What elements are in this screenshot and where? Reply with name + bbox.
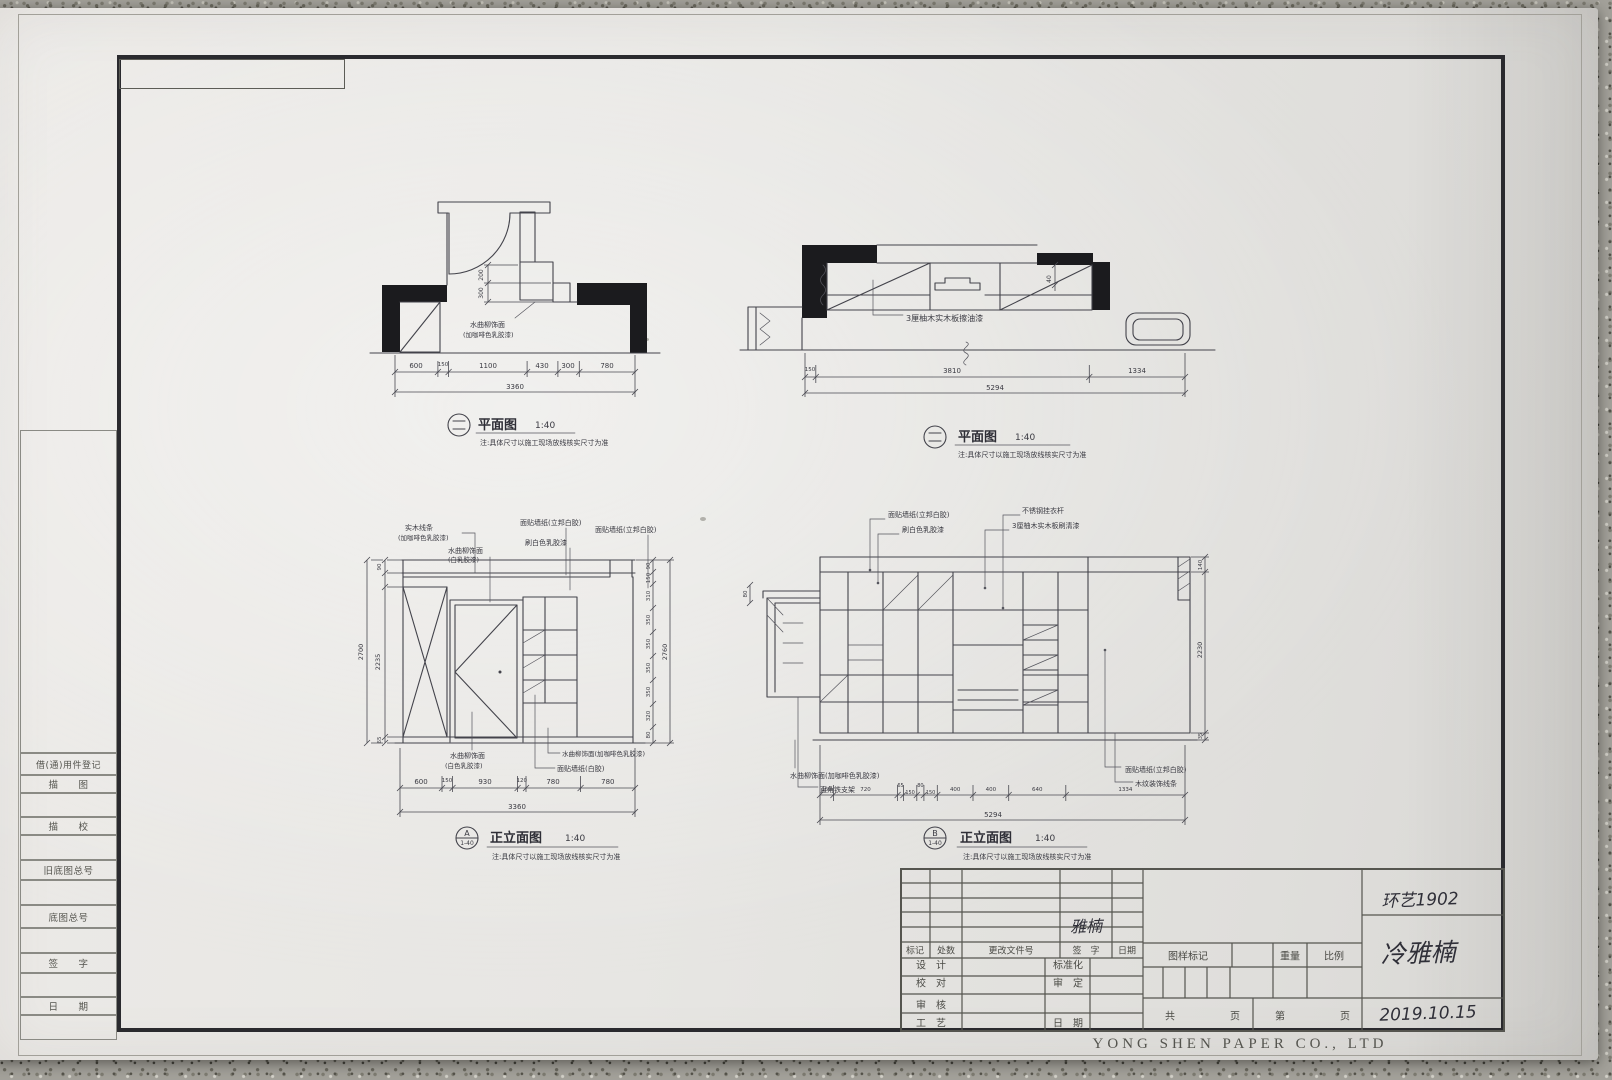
svg-text:5294: 5294 <box>984 811 1002 819</box>
svg-text:1334: 1334 <box>1118 787 1132 793</box>
svg-text:3厘柚木实木板刷清漆: 3厘柚木实木板刷清漆 <box>1012 521 1079 530</box>
svg-text:A: A <box>464 829 470 838</box>
side-column-date: 日 期 <box>20 997 117 1015</box>
eleva-left-dimensions: 90 2235 65 2700 <box>357 557 403 746</box>
svg-text:注:具体尺寸以施工现场放线核实尺寸为准: 注:具体尺寸以施工现场放线核实尺寸为准 <box>480 438 608 447</box>
svg-text:1100: 1100 <box>479 362 497 370</box>
side-column-empty <box>20 793 117 817</box>
svg-text:150: 150 <box>442 778 453 784</box>
elevb-right-dimensions: 140 2230 35 <box>1191 554 1209 743</box>
plan1-annotation: 水曲柳饰面 (加咖啡色乳胶漆) <box>463 302 535 339</box>
svg-text:930: 930 <box>478 778 491 786</box>
svg-text:3360: 3360 <box>508 803 526 811</box>
plan2-bottom-dimensions: 150 3810 1334 5294 <box>802 353 1188 397</box>
handwritten-class: 环艺1902 <box>1381 884 1459 912</box>
svg-text:1-40: 1-40 <box>460 840 474 847</box>
side-column-empty <box>20 880 117 905</box>
svg-text:1:40: 1:40 <box>535 421 555 431</box>
svg-text:600: 600 <box>414 778 427 786</box>
photographed-drawing-sheet: 借(通)用件登记 描 图 描 校 旧底图总号 底图总号 签 字 日 期 <box>0 0 1612 1080</box>
role-date: 日 期 <box>1053 1015 1083 1030</box>
svg-text:平面图: 平面图 <box>958 430 997 445</box>
svg-text:320: 320 <box>646 710 652 721</box>
side-column-negative: 底图总号 <box>20 905 117 928</box>
elevb-linework <box>763 557 1197 740</box>
pages-no-label: 第 <box>1275 1008 1285 1023</box>
svg-text:刷白色乳胶漆: 刷白色乳胶漆 <box>902 525 944 534</box>
plan-view-1-drawing: 200 300 600 150 1100 430 300 780 3360 水曲… <box>330 165 730 475</box>
svg-text:780: 780 <box>601 778 614 786</box>
svg-text:150: 150 <box>926 790 936 796</box>
svg-text:水曲柳饰面: 水曲柳饰面 <box>450 751 485 760</box>
svg-text:注:具体尺寸以施工现场放线核实尺寸为准: 注:具体尺寸以施工现场放线核实尺寸为准 <box>963 852 1091 861</box>
scale-label: 比例 <box>1324 948 1344 963</box>
svg-text:注:具体尺寸以施工现场放线核实尺寸为准: 注:具体尺寸以施工现场放线核实尺寸为准 <box>958 450 1086 459</box>
sample-mark-label: 图样标记 <box>1168 948 1208 963</box>
svg-text:水曲柳饰面(加咖啡色乳胶漆): 水曲柳饰面(加咖啡色乳胶漆) <box>562 749 645 758</box>
svg-text:300: 300 <box>478 287 485 299</box>
elevb-caption: B 1-40 正立面图 1:40 注:具体尺寸以施工现场放线核实尺寸为准 <box>924 827 1091 861</box>
svg-text:3360: 3360 <box>506 383 524 391</box>
elevb-bottom-dimensions: 150 720 65 150 80 150 400 400 640 1334 5… <box>817 745 1188 825</box>
svg-text:木纹装饰线条: 木纹装饰线条 <box>1135 779 1177 788</box>
pages-unit-label: 页 <box>1230 1008 1240 1023</box>
svg-text:65: 65 <box>897 783 903 789</box>
svg-text:150: 150 <box>805 367 816 373</box>
svg-text:350: 350 <box>646 638 652 649</box>
svg-text:2700: 2700 <box>357 644 365 661</box>
elevation-a-drawing: 实木线条 (加咖啡色乳胶漆) 水曲柳饰面 (白乳胶漆) 面贴墙纸(立邦白胶) 刷… <box>350 480 710 880</box>
svg-text:640: 640 <box>1032 787 1043 793</box>
view-symbol-icon <box>448 414 470 436</box>
pages-total-label: 共 <box>1165 1008 1175 1023</box>
svg-text:90: 90 <box>646 562 652 569</box>
svg-text:310: 310 <box>646 590 652 601</box>
role-approve: 审 定 <box>1053 975 1083 990</box>
handwritten-date: 2019.10.15 <box>1379 1002 1477 1025</box>
frame-top-strip-box <box>119 59 345 89</box>
plan-view-2-drawing: 40 3厘柚木实木板擦油漆 150 3810 1334 5294 平面图 1:4… <box>730 195 1230 495</box>
svg-text:刷白色乳胶漆: 刷白色乳胶漆 <box>525 538 567 547</box>
svg-text:350: 350 <box>646 686 652 697</box>
elevb-top-labels: 面贴墙纸(立邦白胶) 刷白色乳胶漆 不锈钢挂衣杆 3厘柚木实木板刷清漆 <box>869 506 1080 609</box>
svg-text:120: 120 <box>517 778 528 784</box>
role-check: 校 对 <box>916 975 946 990</box>
side-column-sign: 签 字 <box>20 953 117 973</box>
elevb-left-dimension: 80 <box>743 582 753 606</box>
role-review: 审 核 <box>916 997 946 1012</box>
side-column-empty <box>20 928 117 953</box>
svg-text:40: 40 <box>1046 275 1053 283</box>
side-column-register: 借(通)用件登记 <box>20 753 117 775</box>
svg-text:150: 150 <box>905 790 915 796</box>
svg-text:面贴墙纸(立邦白胶): 面贴墙纸(立邦白胶) <box>520 518 582 527</box>
svg-text:注:具体尺寸以施工现场放线核实尺寸为准: 注:具体尺寸以施工现场放线核实尺寸为准 <box>492 852 620 861</box>
side-column-old-negative: 旧底图总号 <box>20 860 117 880</box>
eleva-right-dimensions: 90 150 310 350 350 350 350 320 80 2760 <box>636 557 674 746</box>
elevation-b-drawing: 面贴墙纸(立邦白胶) 刷白色乳胶漆 不锈钢挂衣杆 3厘柚木实木板刷清漆 水曲柳饰… <box>735 495 1255 880</box>
svg-text:2230: 2230 <box>1196 642 1204 659</box>
svg-text:400: 400 <box>950 787 961 793</box>
svg-text:600: 600 <box>409 362 422 370</box>
rev-col-sign: 签 字 <box>1072 944 1099 957</box>
svg-text:3810: 3810 <box>943 367 961 375</box>
side-column-empty-tall <box>20 430 117 753</box>
svg-text:1:40: 1:40 <box>1035 834 1055 844</box>
pages-unit2-label: 页 <box>1340 1008 1350 1023</box>
handwritten-name: 冷雅楠 <box>1380 933 1456 972</box>
rev-col-mark: 标记 <box>906 944 924 957</box>
svg-text:200: 200 <box>478 269 485 281</box>
handwritten-signature: 雅楠 <box>1070 912 1103 937</box>
svg-text:(白乳胶漆): (白乳胶漆) <box>448 555 479 564</box>
svg-text:1:40: 1:40 <box>1015 433 1035 443</box>
svg-text:400: 400 <box>986 787 997 793</box>
plan1-caption: 平面图 1:40 注:具体尺寸以施工现场放线核实尺寸为准 <box>448 414 608 447</box>
side-column-empty <box>20 835 117 860</box>
svg-text:1334: 1334 <box>1128 367 1146 375</box>
svg-text:5294: 5294 <box>986 384 1004 392</box>
svg-text:350: 350 <box>646 614 652 625</box>
svg-text:正立面图: 正立面图 <box>490 830 542 846</box>
plan1-bottom-dimensions: 600 150 1100 430 300 780 3360 <box>392 355 638 397</box>
svg-text:(加咖啡色乳胶漆): (加咖啡色乳胶漆) <box>463 330 514 339</box>
svg-text:2235: 2235 <box>374 654 382 671</box>
svg-text:(加咖啡色乳胶漆): (加咖啡色乳胶漆) <box>398 533 449 542</box>
svg-text:720: 720 <box>860 787 871 793</box>
svg-text:80: 80 <box>743 590 749 597</box>
plan2-walls <box>802 245 1110 318</box>
paper-brand-footer: YONG SHEN PAPER CO., LTD <box>1040 1036 1440 1053</box>
svg-text:平面图: 平面图 <box>478 418 517 433</box>
side-column-empty <box>20 1015 117 1040</box>
svg-text:水曲柳饰面: 水曲柳饰面 <box>470 320 505 329</box>
svg-text:35: 35 <box>1198 733 1204 739</box>
svg-text:2760: 2760 <box>661 644 669 661</box>
side-column-trace-check: 描 校 <box>20 817 117 835</box>
svg-text:90: 90 <box>377 563 383 570</box>
rev-col-count: 处数 <box>937 944 955 957</box>
elevb-bottom-labels: 水曲柳饰面(加咖啡色乳胶漆) 直角铁支架 面贴墙纸(立邦白胶) 木纹装饰线条 <box>790 649 1187 794</box>
rev-col-docno: 更改文件号 <box>988 944 1033 957</box>
svg-text:430: 430 <box>535 362 548 370</box>
eleva-linework <box>395 560 645 743</box>
svg-text:正立面图: 正立面图 <box>960 830 1012 846</box>
svg-text:150: 150 <box>646 572 652 583</box>
svg-text:65: 65 <box>377 736 383 743</box>
svg-text:面贴墙纸(立邦白胶): 面贴墙纸(立邦白胶) <box>595 525 657 534</box>
eleva-bottom-dimensions: 600 150 930 120 780 780 3360 <box>397 748 638 817</box>
role-standard: 标准化 <box>1053 957 1083 972</box>
svg-text:1-40: 1-40 <box>928 840 942 847</box>
svg-text:水曲柳饰面(加咖啡色乳胶漆): 水曲柳饰面(加咖啡色乳胶漆) <box>790 771 880 780</box>
svg-text:不锈钢挂衣杆: 不锈钢挂衣杆 <box>1022 506 1064 515</box>
svg-text:780: 780 <box>546 778 559 786</box>
svg-text:实木线条: 实木线条 <box>405 523 433 532</box>
svg-text:780: 780 <box>600 362 613 370</box>
svg-text:(白色乳胶漆): (白色乳胶漆) <box>445 761 483 770</box>
plan2-caption: 平面图 1:40 注:具体尺寸以施工现场放线核实尺寸为准 <box>924 426 1086 459</box>
rev-col-date: 日期 <box>1118 944 1136 957</box>
svg-text:3厘柚木实木板擦油漆: 3厘柚木实木板擦油漆 <box>906 313 983 323</box>
side-column-empty <box>20 973 117 997</box>
svg-text:150: 150 <box>821 787 832 793</box>
svg-text:350: 350 <box>646 662 652 673</box>
role-craft: 工 艺 <box>916 1015 946 1030</box>
svg-text:80: 80 <box>917 783 923 789</box>
svg-text:140: 140 <box>1198 559 1204 570</box>
svg-text:面贴墙纸(白胶): 面贴墙纸(白胶) <box>557 764 605 773</box>
side-column-trace: 描 图 <box>20 775 117 793</box>
eleva-caption: A 1-40 正立面图 1:40 注:具体尺寸以施工现场放线核实尺寸为准 <box>456 827 620 861</box>
plan2-annotation: 3厘柚木实木板擦油漆 <box>873 280 983 323</box>
view-symbol-icon <box>924 426 946 448</box>
svg-text:80: 80 <box>646 731 652 738</box>
plan1-walls <box>382 283 647 353</box>
svg-text:水曲柳饰面: 水曲柳饰面 <box>448 546 483 555</box>
role-design: 设 计 <box>916 957 946 972</box>
svg-text:1:40: 1:40 <box>565 834 585 844</box>
plan1-linework <box>370 202 660 353</box>
svg-text:150: 150 <box>438 362 449 368</box>
weight-label: 重量 <box>1280 948 1300 963</box>
svg-text:面贴墙纸(立邦白胶): 面贴墙纸(立邦白胶) <box>1125 765 1187 774</box>
eleva-bottom-labels: 水曲柳饰面 (白色乳胶漆) 水曲柳饰面(加咖啡色乳胶漆) 面贴墙纸(白胶) <box>445 695 645 773</box>
svg-text:300: 300 <box>561 362 574 370</box>
svg-text:面贴墙纸(立邦白胶): 面贴墙纸(立邦白胶) <box>888 510 950 519</box>
svg-text:B: B <box>932 829 938 838</box>
